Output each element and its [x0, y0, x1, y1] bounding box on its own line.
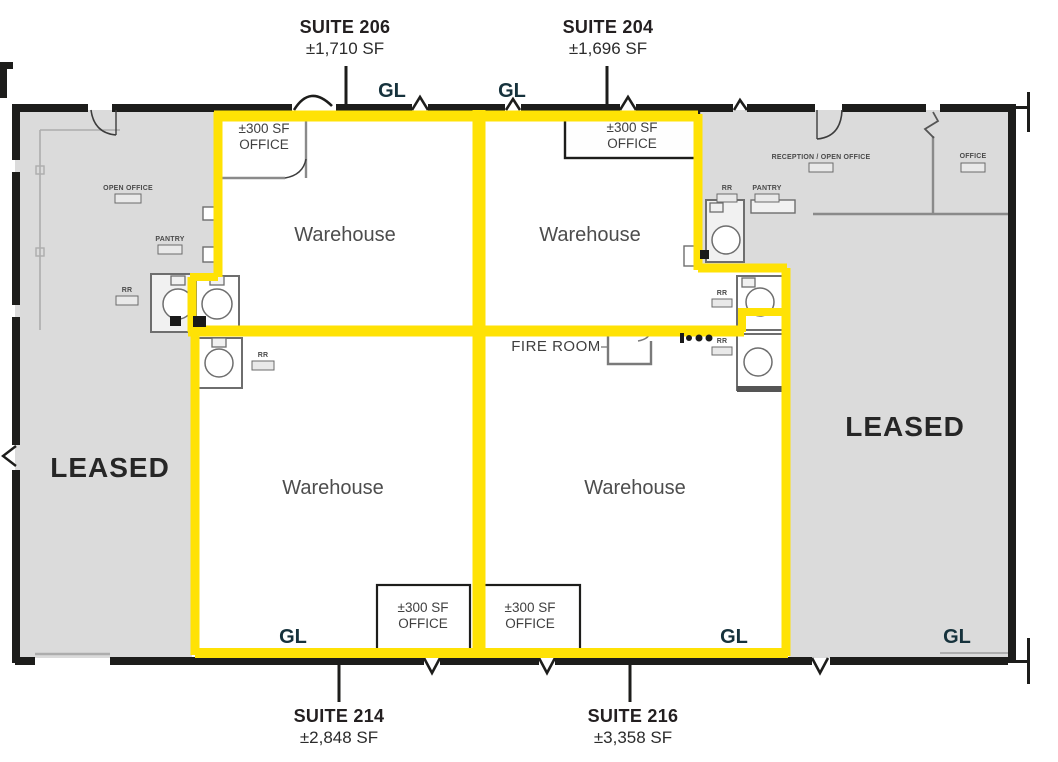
floor-plan: SUITE 206 ±1,710 SF SUITE 204 ±1,696 SF … — [0, 0, 1058, 762]
annotation-rr-left: RR — [122, 287, 133, 295]
gl-label-bottom-1: GL — [279, 626, 307, 648]
gl-label-top-2: GL — [498, 80, 526, 102]
office-300sf-line2: OFFICE — [505, 616, 556, 632]
suite-206-area: ±1,710 SF — [300, 38, 391, 60]
office-300sf-line1: ±300 SF — [239, 121, 290, 137]
suite-206-name: SUITE 206 — [300, 16, 391, 38]
suite-204-name: SUITE 204 — [563, 16, 654, 38]
office-300sf-line1: ±300 SF — [505, 600, 556, 616]
suite-204-area: ±1,696 SF — [563, 38, 654, 60]
warehouse-label-216: Warehouse — [584, 477, 686, 500]
annotation-rr-wrap-1: RR — [717, 290, 728, 298]
annotation-office-right: OFFICE — [960, 153, 987, 161]
suite-216-name: SUITE 216 — [588, 705, 679, 727]
suite-214-name: SUITE 214 — [294, 705, 385, 727]
office-300sf-label-216: ±300 SF OFFICE — [505, 600, 556, 632]
office-300sf-label-204: ±300 SF OFFICE — [607, 120, 658, 152]
office-300sf-label-214: ±300 SF OFFICE — [398, 600, 449, 632]
office-300sf-label-206: ±300 SF OFFICE — [239, 121, 290, 153]
fire-room-label: FIRE ROOM — [511, 339, 601, 355]
suite-214-label: SUITE 214 ±2,848 SF — [294, 705, 385, 749]
suite-214-area: ±2,848 SF — [294, 727, 385, 749]
suite-206-label: SUITE 206 ±1,710 SF — [300, 16, 391, 60]
annotation-rr-right-top: RR — [722, 185, 733, 193]
suite-204-label: SUITE 204 ±1,696 SF — [563, 16, 654, 60]
annotation-rr-mid: RR — [258, 352, 269, 360]
suite-outlines — [188, 110, 788, 657]
gl-label-bottom-3: GL — [943, 626, 971, 648]
leased-label-left: LEASED — [50, 452, 170, 484]
office-300sf-line2: OFFICE — [607, 136, 658, 152]
office-300sf-line1: ±300 SF — [398, 600, 449, 616]
plan-graphics — [0, 0, 1058, 762]
warehouse-label-206: Warehouse — [294, 224, 396, 247]
leased-label-right: LEASED — [845, 411, 965, 443]
warehouse-label-214: Warehouse — [282, 477, 384, 500]
gl-label-bottom-2: GL — [720, 626, 748, 648]
annotation-reception-open-office: RECEPTION / OPEN OFFICE — [772, 154, 871, 162]
gl-label-top-1: GL — [378, 80, 406, 102]
annotation-pantry-left: PANTRY — [155, 236, 184, 244]
office-300sf-line2: OFFICE — [398, 616, 449, 632]
office-300sf-line2: OFFICE — [239, 137, 290, 153]
annotation-pantry-right: PANTRY — [752, 185, 781, 193]
suite-216-label: SUITE 216 ±3,358 SF — [588, 705, 679, 749]
annotation-open-office: OPEN OFFICE — [103, 185, 153, 193]
office-300sf-line1: ±300 SF — [607, 120, 658, 136]
suite-216-area: ±3,358 SF — [588, 727, 679, 749]
warehouse-label-204: Warehouse — [539, 224, 641, 247]
annotation-rr-wrap-2: RR — [717, 338, 728, 346]
office-rooms — [222, 112, 699, 656]
